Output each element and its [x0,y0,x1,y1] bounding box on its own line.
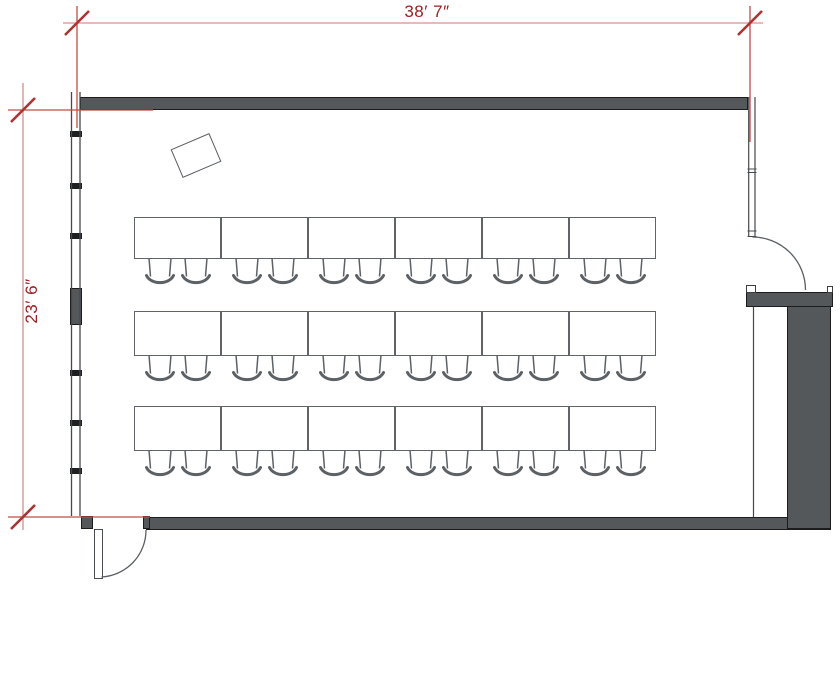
chair-icon [268,450,298,478]
dim-tick-top-right [738,11,762,35]
chair-icon [616,355,646,383]
chair-icon [145,450,175,478]
chair [529,450,559,483]
chair-icon [355,258,385,286]
student-table [308,311,395,356]
chair [268,355,298,388]
chair [442,355,472,388]
chair [406,258,436,291]
door-swing-arc-southwest [102,530,147,577]
chair-icon [181,258,211,286]
chair [616,355,646,388]
chair [616,450,646,483]
east-wall-top-bar [746,292,833,307]
chair-icon [232,258,262,286]
chair [268,450,298,483]
dim-tick-left-bottom [11,505,35,529]
chair [319,258,349,291]
chair [442,258,472,291]
student-table [134,406,221,451]
chair [406,355,436,388]
chair [580,450,610,483]
chair-icon [616,258,646,286]
chair [181,450,211,483]
door-jamb-southwest [143,516,150,529]
chair [406,450,436,483]
chair-icon [181,450,211,478]
door-leaf-southwest [94,529,103,579]
chair-icon [268,355,298,383]
chair-icon [529,450,559,478]
chair [319,355,349,388]
dimension-height-label: 23′ 6″ [22,256,42,346]
east-sidelight-joints [748,169,757,237]
door-hinge-cap-east [746,285,756,293]
chair [442,450,472,483]
chair-icon [406,355,436,383]
chair-icon [268,258,298,286]
student-table [221,217,308,259]
chair-icon [319,258,349,286]
chair-icon [529,355,559,383]
chair-icon [580,355,610,383]
chair-icon [580,450,610,478]
dim-tick-left-top [11,98,35,122]
window-mullion [70,370,82,376]
student-table [482,311,569,356]
chair-icon [355,355,385,383]
teacher-desk [171,133,222,178]
floor-plan: 38′ 7″ 23′ 6″ [0,0,840,700]
dim-tick-top-left [65,11,89,35]
chair-icon [319,450,349,478]
chair [232,450,262,483]
student-table [569,406,656,451]
chair-icon [181,355,211,383]
chair [493,450,523,483]
chair-icon [616,450,646,478]
chair-icon [406,258,436,286]
chair-icon [406,450,436,478]
window-mullion [70,131,82,137]
student-table [221,406,308,451]
student-table [482,406,569,451]
chair-icon [493,355,523,383]
chair-icon [355,450,385,478]
east-wall-column [787,306,831,529]
student-table [569,311,656,356]
door-post-southwest [81,516,93,530]
dimension-width-label: 38′ 7″ [382,2,472,22]
chair-icon [442,258,472,286]
chair [493,355,523,388]
window-wall-column [70,288,82,325]
door-swing-arc-east [753,237,806,290]
chair [580,258,610,291]
chair-icon [145,355,175,383]
chair-icon [493,450,523,478]
chair [529,258,559,291]
chair-icon [529,258,559,286]
chair-icon [232,355,262,383]
chair [319,450,349,483]
south-wall [146,517,831,530]
student-table [308,217,395,259]
chair-icon [580,258,610,286]
chair-icon [232,450,262,478]
chair [181,355,211,388]
chair [232,258,262,291]
chair-icon [319,355,349,383]
chair [529,355,559,388]
student-table [395,217,482,259]
window-mullion [70,420,82,426]
chair [493,258,523,291]
chair-icon [145,258,175,286]
student-table [569,217,656,259]
student-table [395,311,482,356]
chair [145,355,175,388]
student-table [134,311,221,356]
window-mullion [70,183,82,189]
student-table [134,217,221,259]
chair [355,355,385,388]
chair [268,258,298,291]
window-mullion [70,233,82,239]
chair [145,450,175,483]
window-mullion [70,468,82,474]
chair [181,258,211,291]
north-wall [80,97,748,110]
chair [355,258,385,291]
chair [355,450,385,483]
student-table [308,406,395,451]
chair-icon [442,450,472,478]
chair-icon [493,258,523,286]
student-table [482,217,569,259]
chair-icon [442,355,472,383]
chair [580,355,610,388]
student-table [395,406,482,451]
chair [145,258,175,291]
chair [232,355,262,388]
student-table [221,311,308,356]
chair [616,258,646,291]
east-wall-end-cap [827,286,834,293]
